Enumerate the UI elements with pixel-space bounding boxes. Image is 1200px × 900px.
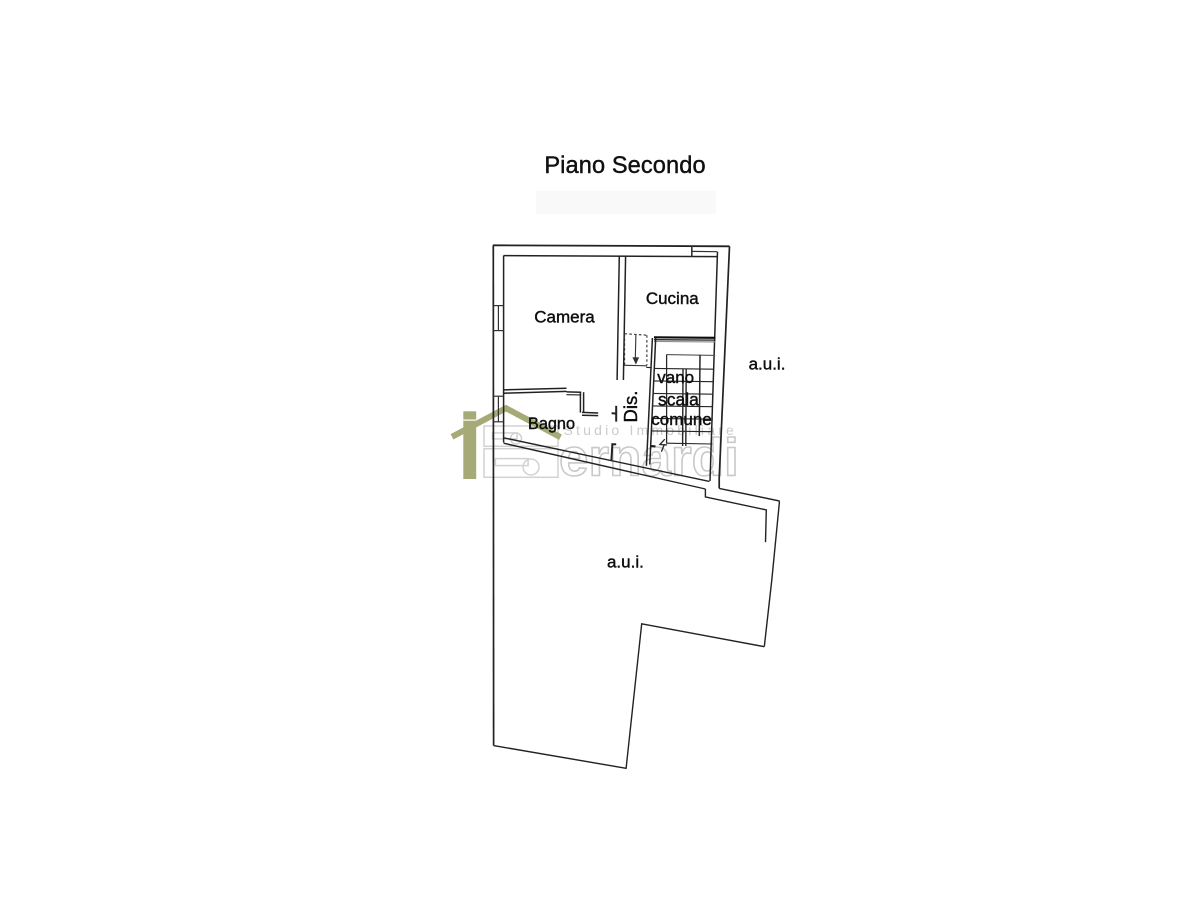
svg-text:a.u.i.: a.u.i. — [749, 355, 786, 374]
svg-text:comune: comune — [651, 410, 711, 429]
svg-text:Camera: Camera — [534, 308, 595, 327]
svg-text:Dis.: Dis. — [620, 391, 641, 423]
svg-text:Bagno: Bagno — [528, 415, 575, 433]
svg-text:Cucina: Cucina — [646, 289, 699, 308]
svg-text:scala: scala — [658, 389, 699, 409]
svg-text:Piano Secondo: Piano Secondo — [544, 153, 705, 179]
svg-text:vano: vano — [657, 368, 694, 387]
svg-text:a.u.i.: a.u.i. — [607, 553, 644, 572]
